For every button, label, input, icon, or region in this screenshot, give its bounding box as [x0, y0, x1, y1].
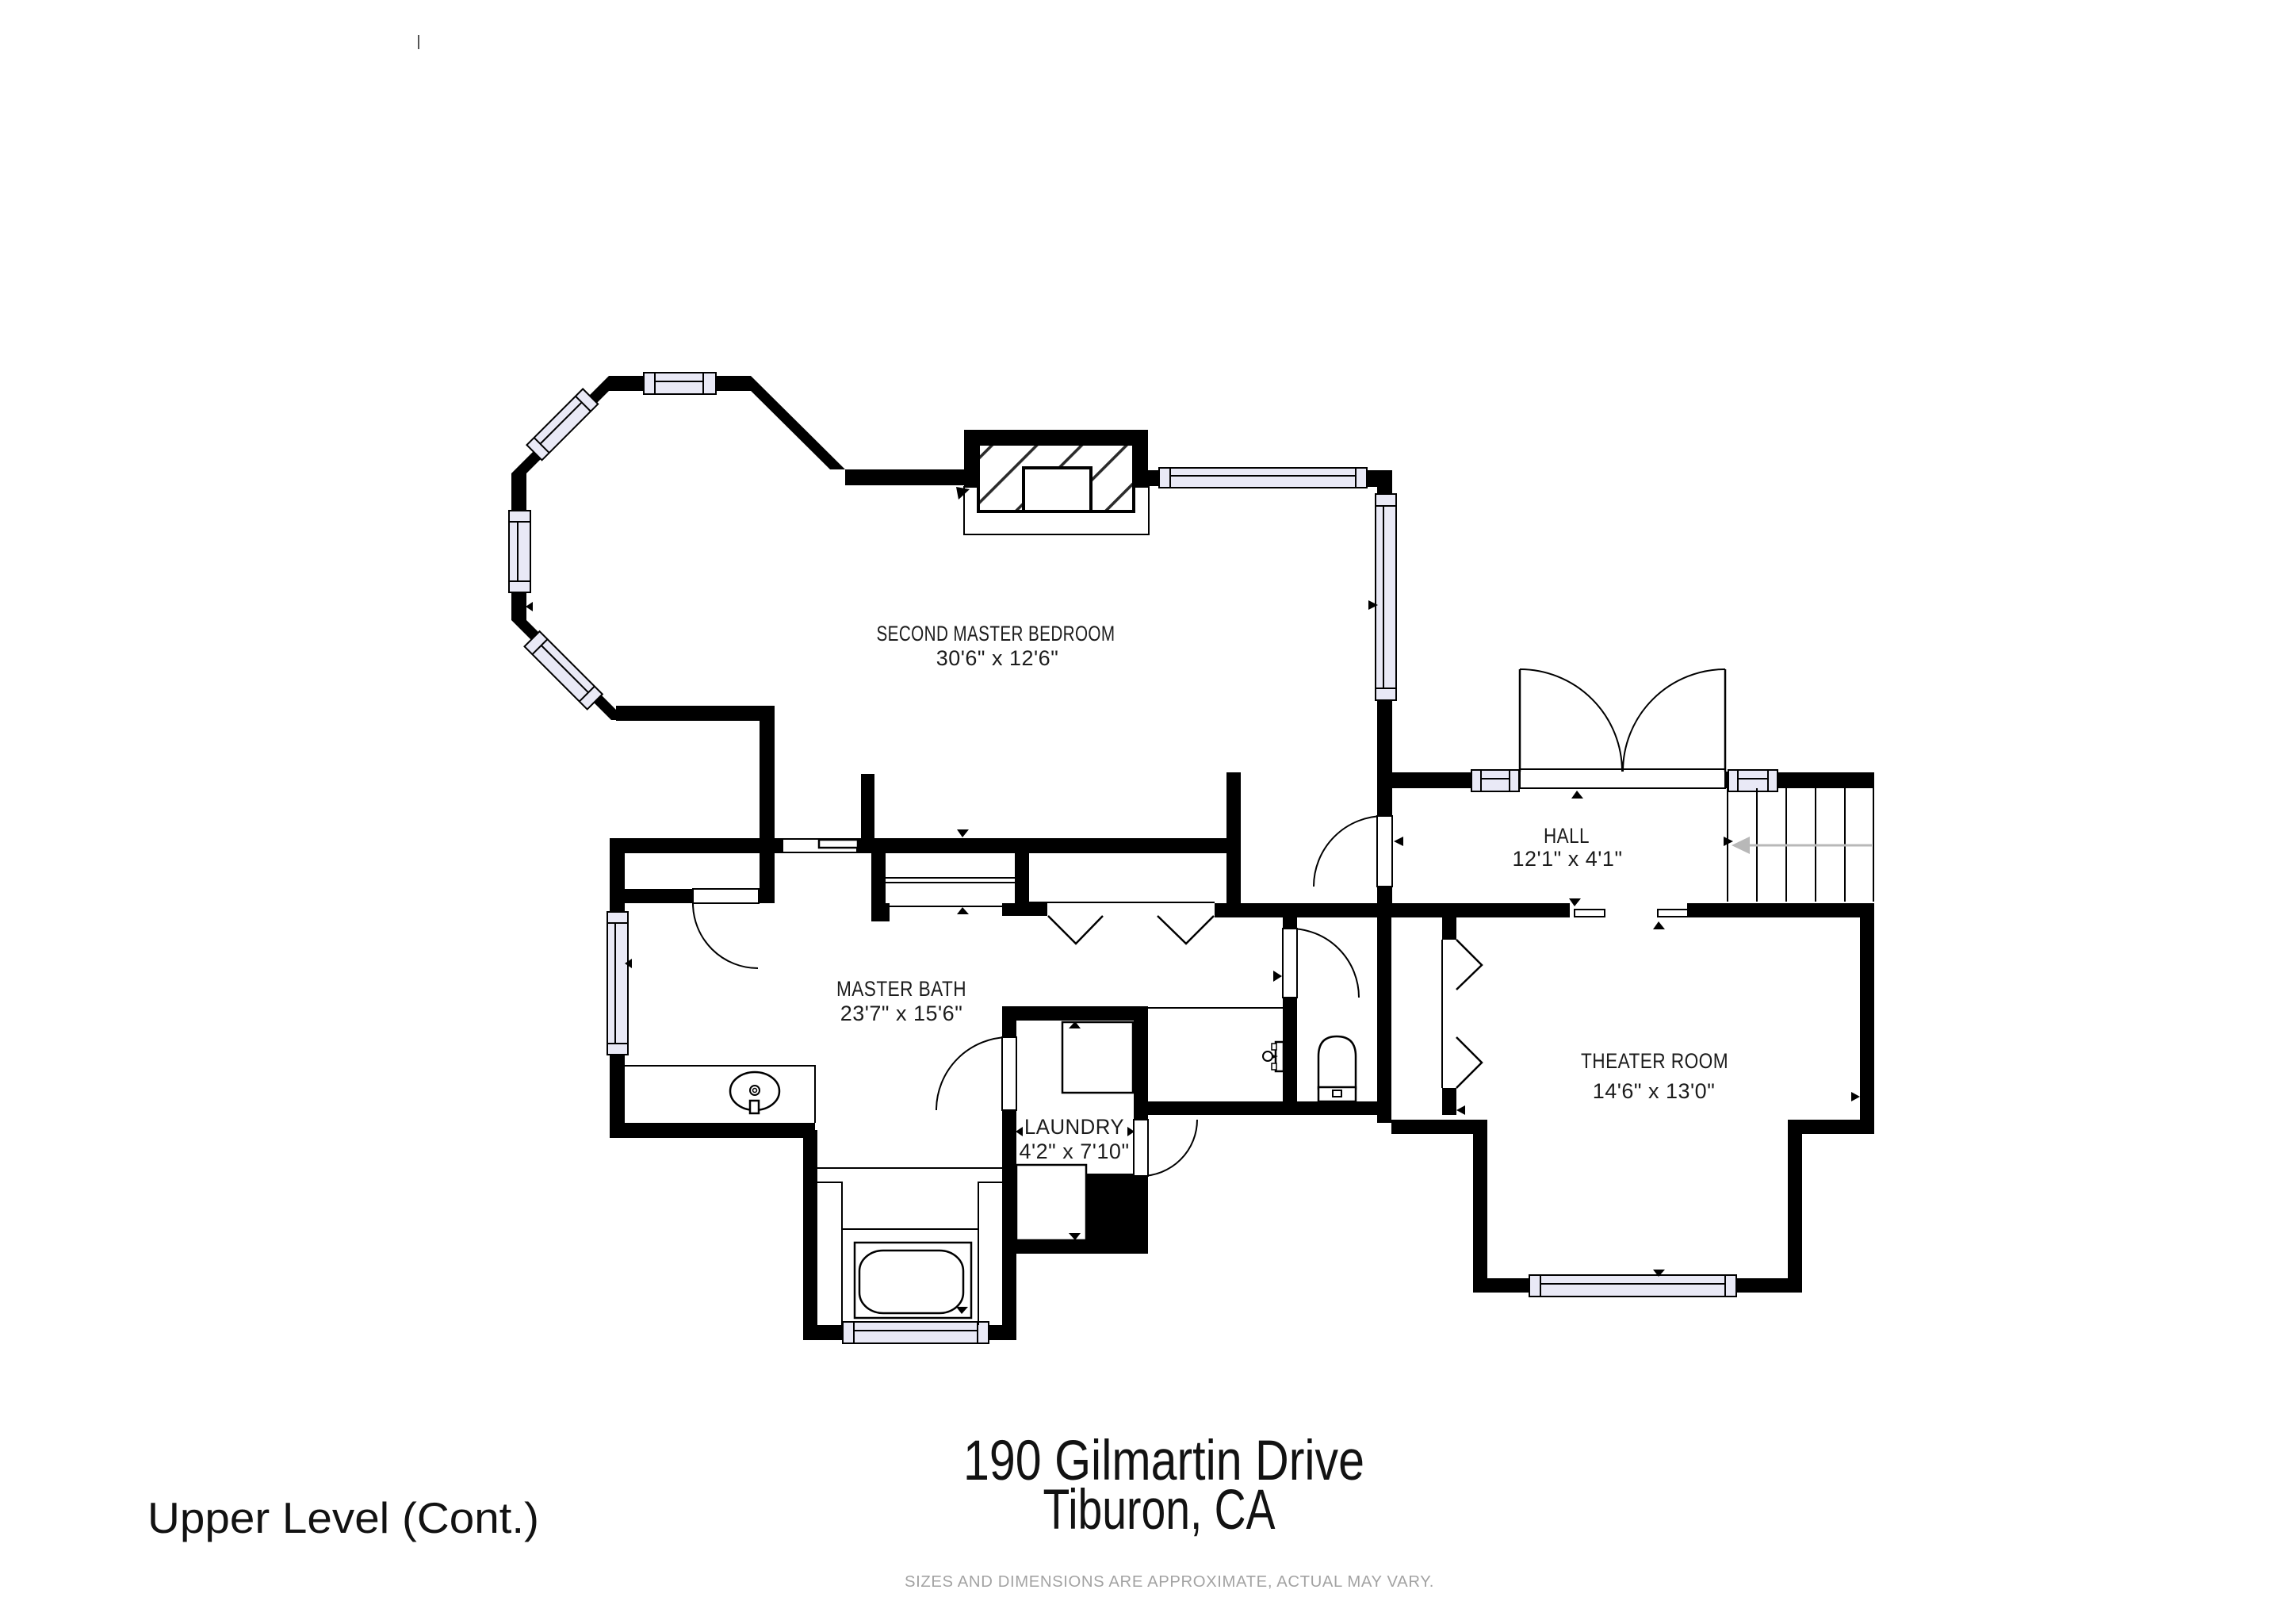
svg-text:12'1" x 4'1": 12'1" x 4'1"	[1512, 847, 1622, 871]
svg-text:4'2" x 7'10": 4'2" x 7'10"	[1019, 1139, 1129, 1163]
svg-text:HALL: HALL	[1544, 824, 1590, 848]
svg-text:LAUNDRY: LAUNDRY	[1024, 1115, 1124, 1139]
svg-text:Upper Level (Cont.): Upper Level (Cont.)	[147, 1493, 539, 1542]
svg-text:SECOND MASTER BEDROOM: SECOND MASTER BEDROOM	[877, 622, 1115, 645]
svg-text:THEATER ROOM: THEATER ROOM	[1581, 1049, 1728, 1073]
svg-text:SIZES AND DIMENSIONS ARE APPRO: SIZES AND DIMENSIONS ARE APPROXIMATE, AC…	[905, 1573, 1434, 1591]
svg-text:Tiburon, CA: Tiburon, CA	[1043, 1479, 1276, 1542]
svg-text:23'7" x 15'6": 23'7" x 15'6"	[840, 1002, 963, 1025]
svg-text:MASTER BATH: MASTER BATH	[836, 977, 966, 1001]
svg-text:14'6" x 13'0": 14'6" x 13'0"	[1593, 1079, 1716, 1103]
svg-text:30'6" x 12'6": 30'6" x 12'6"	[936, 646, 1059, 670]
